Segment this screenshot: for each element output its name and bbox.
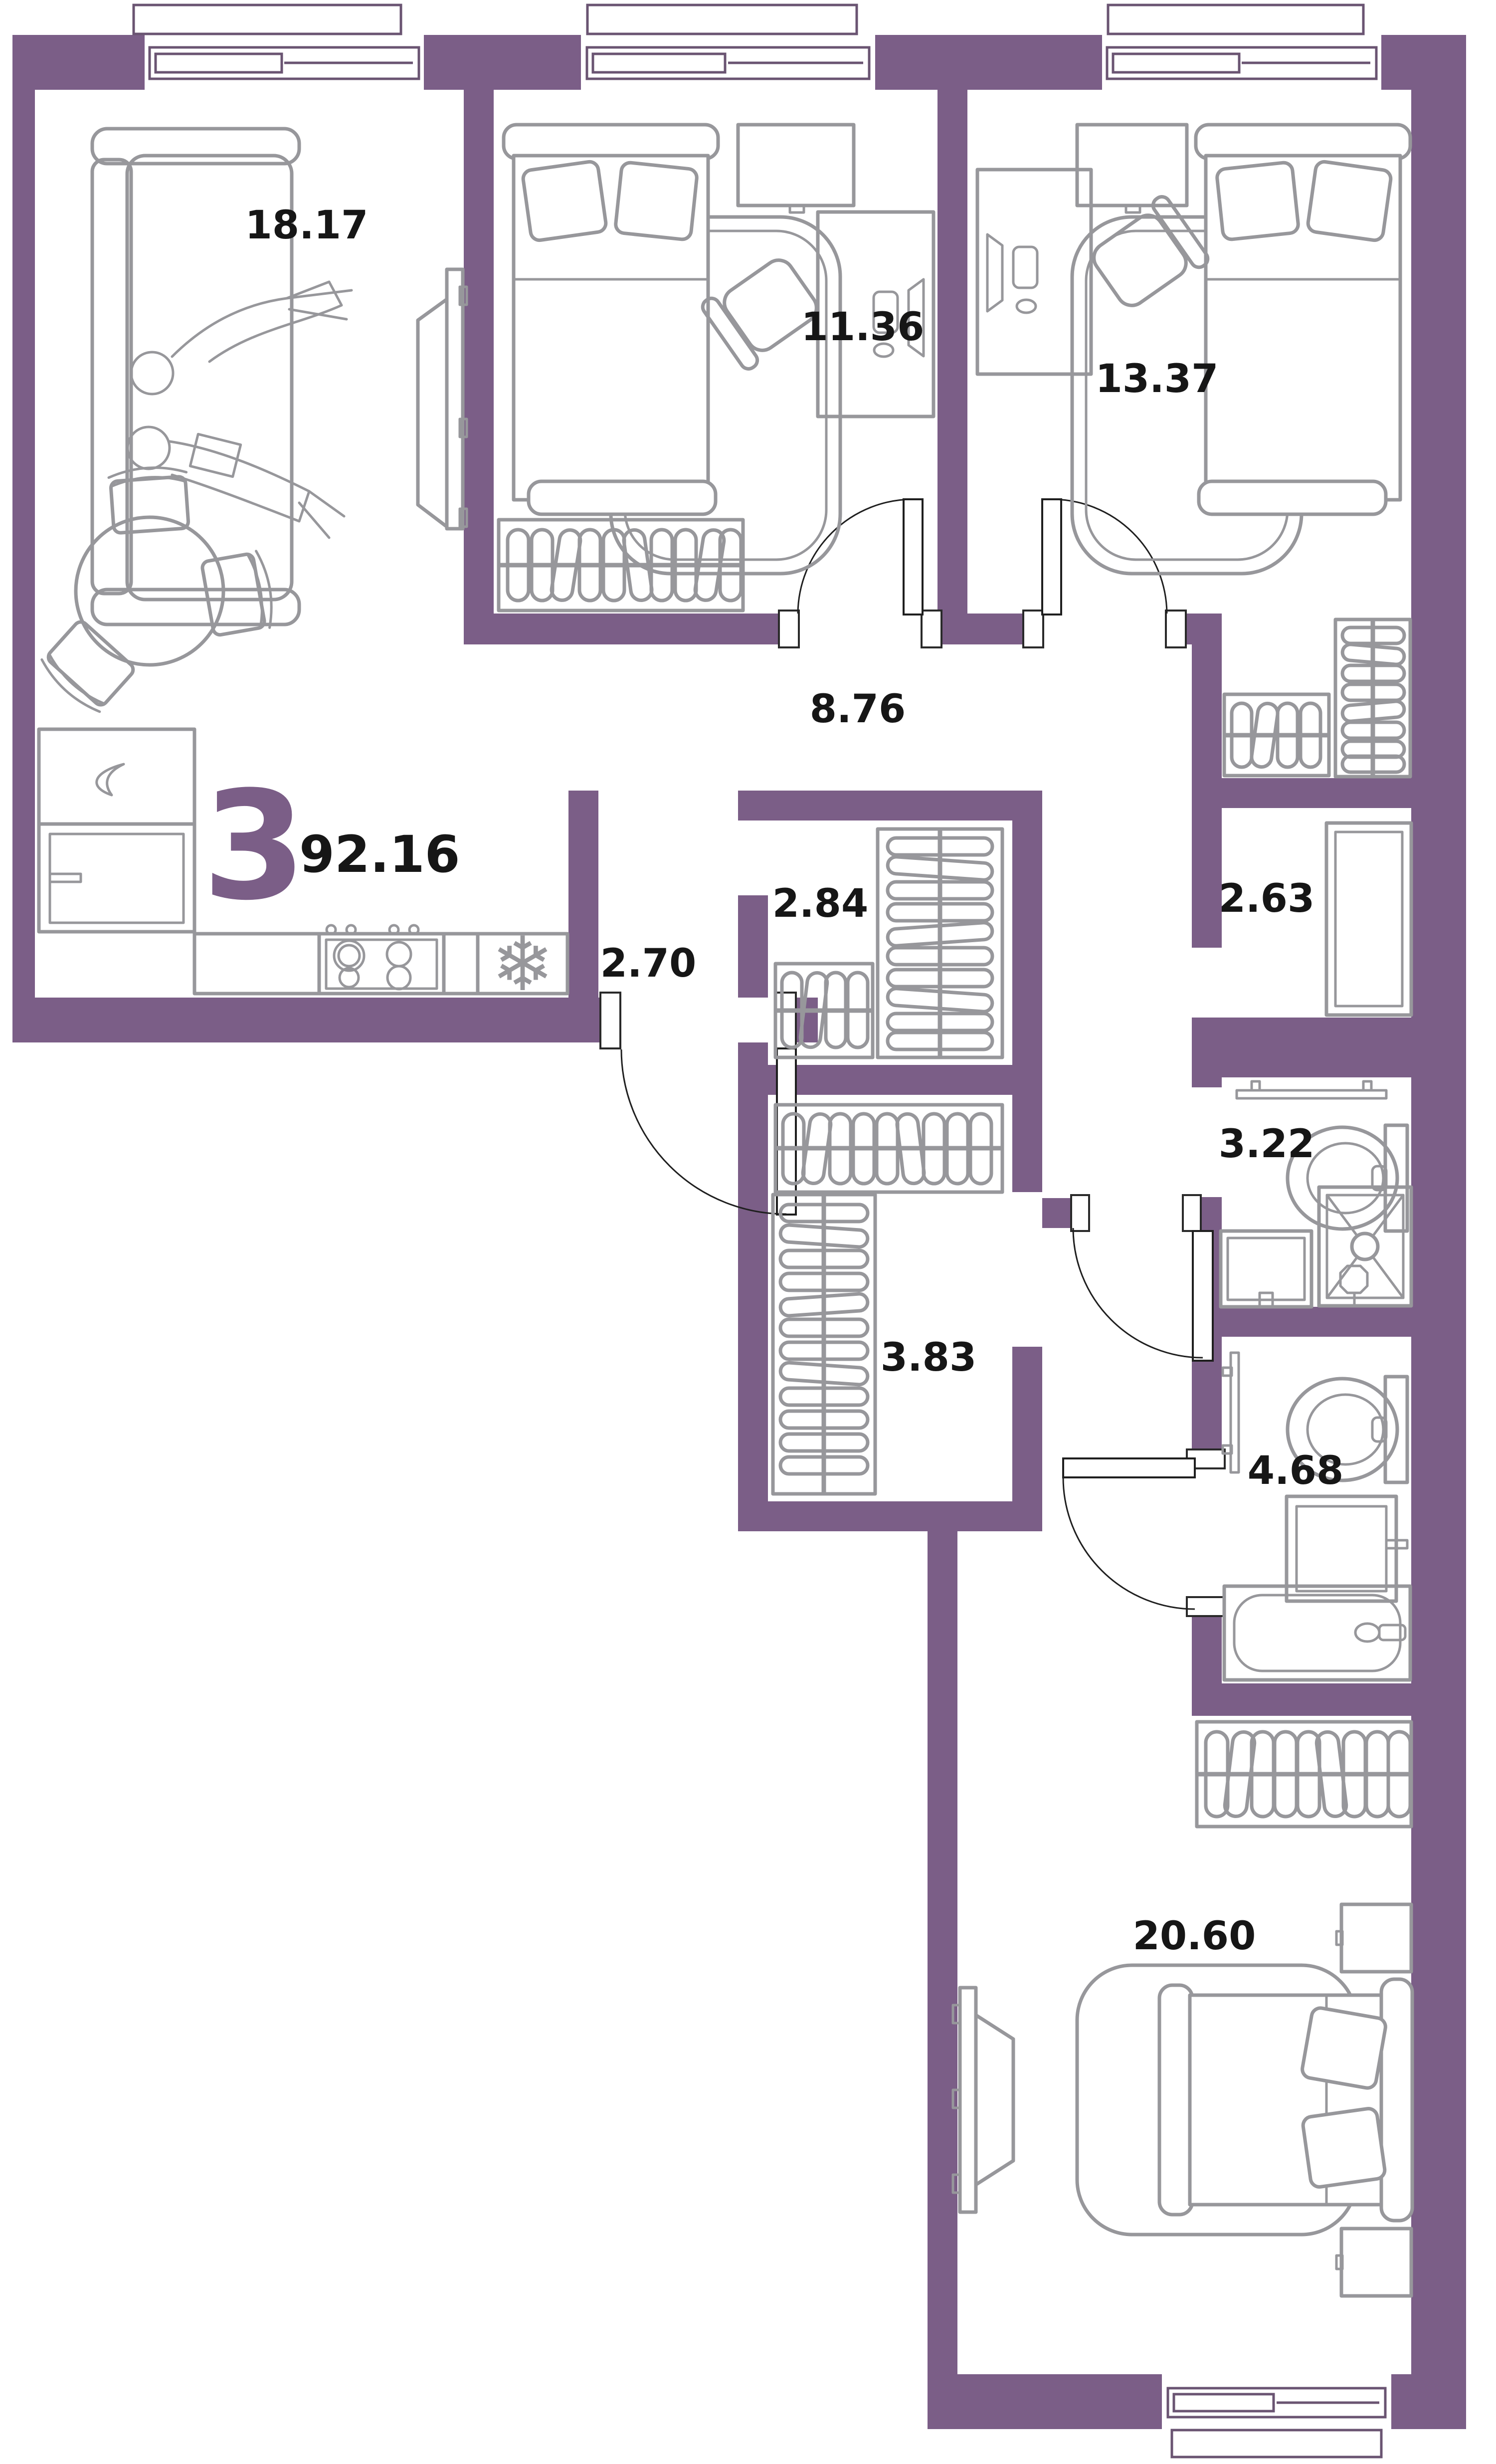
towel-rail — [1223, 1353, 1239, 1472]
room-label-storage: 2.63 — [1219, 876, 1314, 921]
bed — [1159, 1979, 1412, 2221]
room-label-living: 18.17 — [245, 203, 369, 248]
wardrobe-rack — [775, 1105, 1002, 1192]
tv-cabinet — [738, 125, 854, 212]
room-label-entry: 2.70 — [600, 941, 696, 986]
washing-machine — [1221, 1231, 1311, 1307]
shower — [1319, 1187, 1411, 1306]
wardrobe-rack — [773, 1195, 875, 1494]
shower-room — [1221, 1081, 1411, 1307]
wall-shower-bath — [1192, 1307, 1466, 1337]
room-label-bedroom3: 20.60 — [1133, 1914, 1256, 1959]
snowflake-icon: ❄ — [491, 921, 554, 1008]
wall-storage-top — [1192, 778, 1466, 808]
exterior-wall-lower-left — [928, 1531, 957, 2429]
apartment-total-area: 92.16 — [299, 825, 460, 884]
fridge: ❄ — [478, 921, 567, 1008]
people-on-sofa — [128, 282, 352, 538]
wardrobe-rack — [499, 520, 743, 611]
storage-room — [1326, 823, 1411, 1015]
nightstand — [1336, 1904, 1411, 1972]
room-label-bath: 4.68 — [1248, 1448, 1343, 1493]
bathroom — [1223, 1353, 1410, 1680]
wardrobe-rack — [878, 829, 1002, 1057]
wall-closet-right-lower — [1012, 1347, 1042, 1501]
pillow — [1302, 2107, 1386, 2188]
window-bedroom1 — [581, 5, 875, 90]
pillow — [615, 162, 698, 240]
room-label-bedroom1: 11.36 — [801, 305, 925, 350]
wall-bedroom1-hall-left — [464, 614, 798, 644]
exterior-wall-right — [1411, 35, 1466, 2429]
room-label-bedroom2: 13.37 — [1096, 357, 1219, 402]
wall-closet-left — [738, 1095, 768, 1501]
bedroom3 — [953, 1722, 1412, 2296]
wall-wardrobe-top — [738, 791, 1042, 821]
window-sill — [587, 5, 857, 34]
wardrobe-rack — [1197, 1722, 1411, 1827]
wall-wardrobe-right-upper — [1012, 791, 1042, 1192]
room-label-closet: 3.83 — [881, 1335, 976, 1380]
pillow — [1307, 161, 1392, 241]
pillow — [1216, 162, 1299, 240]
bedroom1-door — [779, 499, 941, 647]
kitchen-counter — [194, 934, 319, 994]
wall-corridor-door-left — [1042, 1198, 1071, 1228]
kitchen-sink-icon — [97, 764, 124, 795]
tv-cabinet — [1077, 125, 1187, 212]
wardrobe-rack — [1224, 694, 1329, 776]
bedroom1 — [499, 125, 934, 611]
cabinet — [1326, 823, 1411, 1015]
window-sill — [134, 5, 401, 34]
desk — [977, 170, 1211, 374]
room-label-shower: 3.22 — [1219, 1122, 1314, 1167]
bed — [1196, 125, 1410, 514]
bed — [504, 125, 718, 514]
floor-plan: ❄ — [0, 0, 1496, 2464]
window-sill — [1108, 5, 1363, 34]
desk-chair — [1085, 194, 1211, 316]
pillow — [522, 161, 607, 241]
pillow — [1301, 2007, 1387, 2089]
window-sill — [1172, 2430, 1381, 2457]
window-bedroom2 — [1102, 5, 1381, 90]
wardrobe-rack — [1335, 619, 1410, 777]
nightstand — [1336, 2229, 1411, 2296]
wall-storage-bottom — [1192, 1018, 1466, 1077]
shower-room-door — [1071, 1195, 1213, 1361]
tv-living — [418, 269, 467, 529]
room-label-wardrobe: 2.84 — [772, 881, 868, 926]
wall-storage-left — [1192, 808, 1222, 948]
wall-shower-left-sliver — [1192, 1077, 1222, 1087]
room-label-hall: 8.76 — [810, 687, 906, 732]
towel-rail — [1237, 1081, 1386, 1098]
wall-living-bedroom1 — [464, 90, 494, 615]
bathroom-door — [1063, 1449, 1225, 1616]
wall-bedroom1-bedroom2 — [937, 90, 967, 615]
exterior-wall-left — [12, 35, 35, 1042]
wall-kitchen-entry — [568, 791, 598, 998]
kitchen-tall-unit — [39, 824, 194, 932]
stove — [319, 925, 444, 994]
apartment-rooms-count: 3 — [202, 759, 307, 933]
window-living — [134, 5, 424, 90]
window-bedroom3 — [1162, 2374, 1391, 2457]
wall-bedroom3-top — [1192, 1683, 1466, 1716]
tv-bedroom3 — [953, 1988, 1013, 2212]
closet-room — [773, 1105, 1002, 1494]
wall-closet-bottom — [738, 1501, 1042, 1531]
wall-step-bedroom2 — [1192, 644, 1222, 778]
